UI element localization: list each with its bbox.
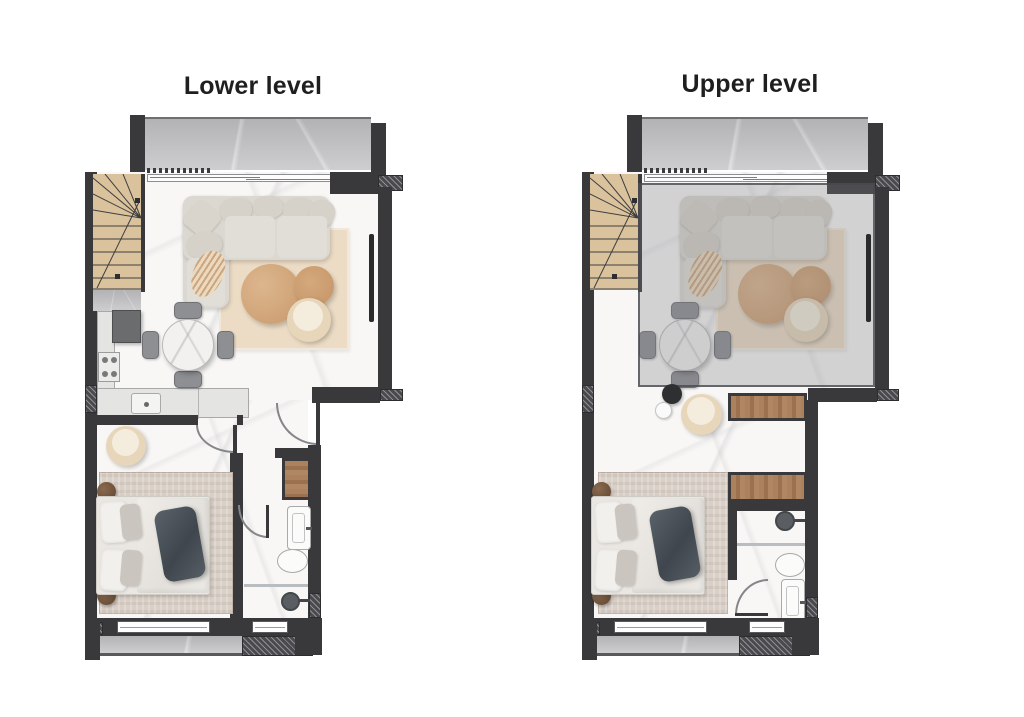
landing-armchair bbox=[681, 394, 722, 435]
void-overlay bbox=[638, 183, 875, 387]
balcony-wall-left bbox=[627, 115, 642, 172]
bottom-wall-left bbox=[582, 618, 597, 660]
armchair-seat bbox=[293, 301, 323, 331]
sliding-glass-door bbox=[644, 174, 830, 182]
sliding-door-panel bbox=[150, 177, 260, 178]
bedroom-armchair bbox=[106, 426, 146, 466]
sliding-door-panel bbox=[743, 179, 827, 180]
kitchen-sink bbox=[131, 393, 161, 414]
lounge-armchair bbox=[287, 298, 331, 342]
burner bbox=[111, 357, 117, 363]
entrance-wall-hatch bbox=[380, 389, 403, 401]
lower-level-title: Lower level bbox=[85, 72, 421, 101]
balcony-railing bbox=[644, 168, 708, 173]
wall-bathroom-top bbox=[728, 502, 807, 511]
bathroom-sink bbox=[287, 506, 311, 550]
sink-basin bbox=[786, 586, 799, 616]
upper-level-title: Upper level bbox=[582, 70, 918, 99]
wall-top-entry-hatch bbox=[877, 389, 899, 401]
exterior-wall-right-living bbox=[378, 187, 392, 400]
side-table-white bbox=[655, 402, 672, 419]
faucet bbox=[306, 527, 312, 530]
burner bbox=[102, 371, 108, 377]
wall-bathroom-left bbox=[728, 511, 737, 580]
counter-divider bbox=[198, 389, 199, 419]
understair-floor bbox=[93, 290, 141, 311]
top-balcony-floor bbox=[145, 117, 371, 170]
sink-basin bbox=[292, 513, 305, 543]
exterior-wall-left-hatch bbox=[85, 385, 97, 413]
wall-stub bbox=[237, 415, 243, 425]
sliding-glass-door bbox=[147, 174, 333, 182]
sofa-seat bbox=[277, 216, 327, 258]
exterior-wall-right-hatch bbox=[309, 593, 321, 618]
bathroom-door-leaf bbox=[266, 505, 269, 538]
closet bbox=[728, 472, 807, 502]
bottom-wall-left bbox=[85, 618, 100, 660]
pillow bbox=[119, 503, 143, 541]
wall-top-right bbox=[330, 172, 378, 194]
pillow bbox=[119, 549, 142, 587]
shower-arm bbox=[298, 599, 310, 602]
dining-chair bbox=[174, 371, 202, 388]
exterior-wall-left-hatch bbox=[582, 385, 594, 413]
wall-vestibule-bath bbox=[275, 448, 308, 458]
armchair-seat bbox=[687, 397, 715, 425]
shower-glass bbox=[737, 543, 805, 546]
bottom-wall-right bbox=[792, 636, 819, 655]
entrance-door-leaf bbox=[316, 403, 320, 445]
exterior-wall-right-hatch bbox=[806, 597, 818, 618]
toilet bbox=[775, 553, 805, 577]
sliding-door-panel bbox=[647, 177, 757, 178]
side-table-black bbox=[662, 384, 682, 404]
bathroom-door-leaf bbox=[735, 613, 768, 616]
staircase bbox=[590, 174, 640, 290]
exterior-wall-right-living bbox=[875, 187, 889, 400]
bottom-wall-right bbox=[295, 636, 322, 655]
faucet bbox=[144, 402, 149, 407]
dining-table bbox=[162, 319, 214, 371]
kitchen-counter-bottom bbox=[97, 388, 249, 418]
staircase bbox=[93, 174, 143, 290]
wall-top-entry bbox=[808, 388, 877, 402]
dining-chair bbox=[142, 331, 159, 359]
bedroom-window bbox=[614, 621, 707, 633]
shower-head bbox=[775, 511, 795, 531]
upper-level-plan bbox=[582, 112, 918, 660]
pillow bbox=[614, 549, 637, 587]
shower-glass bbox=[244, 584, 308, 587]
stove-hob bbox=[98, 352, 120, 382]
top-balcony-floor bbox=[642, 117, 868, 170]
burner bbox=[111, 371, 117, 377]
entrance-wall bbox=[312, 387, 380, 403]
shower-arm bbox=[793, 519, 805, 522]
bathroom-window bbox=[749, 621, 785, 633]
lower-level-plan bbox=[85, 112, 421, 660]
tv bbox=[369, 234, 374, 322]
pillow bbox=[614, 503, 638, 541]
armchair-seat bbox=[112, 429, 139, 456]
bathroom-window bbox=[252, 621, 288, 633]
toilet bbox=[277, 549, 308, 573]
sofa-seat bbox=[225, 216, 275, 258]
balcony-railing bbox=[147, 168, 211, 173]
closet bbox=[728, 393, 807, 421]
closet bbox=[282, 458, 311, 500]
dining-chair bbox=[174, 302, 202, 319]
floorplan-page: { "page": { "background": "#ffffff" }, "… bbox=[0, 0, 1024, 717]
balcony-wall-left bbox=[130, 115, 145, 172]
wall-kitchen-bedroom bbox=[85, 415, 198, 425]
tv bbox=[866, 234, 871, 322]
stair-side-wall bbox=[141, 174, 145, 292]
dining-chair bbox=[217, 331, 234, 359]
bedroom-window bbox=[117, 621, 210, 633]
fridge bbox=[112, 310, 141, 343]
sliding-door-panel bbox=[246, 179, 330, 180]
bedroom-door-leaf bbox=[233, 425, 237, 453]
faucet bbox=[800, 601, 806, 604]
burner bbox=[102, 357, 108, 363]
